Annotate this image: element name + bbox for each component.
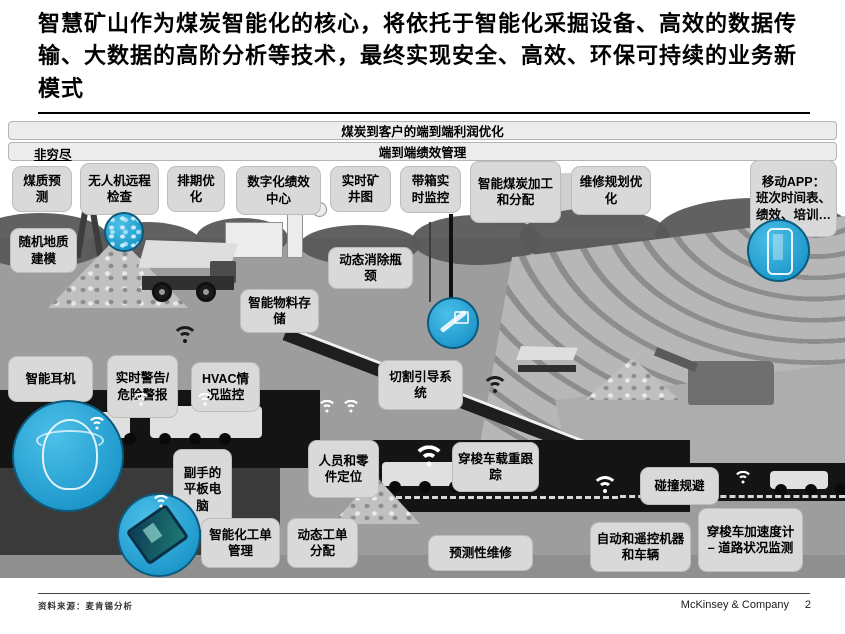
excavator	[688, 361, 774, 405]
wifi-icon	[592, 476, 618, 498]
haul-truck	[138, 240, 238, 302]
truck-wheel	[196, 282, 216, 302]
footer-divider	[38, 593, 810, 594]
page-number: 2	[805, 599, 811, 611]
wifi-icon	[482, 376, 508, 398]
truck-chassis	[518, 365, 575, 372]
label-dynamic-bottleneck-removal: 动态消除瓶颈	[328, 247, 413, 289]
label-stochastic-geology-modeling: 随机地质建模	[10, 228, 77, 273]
wifi-icon	[413, 445, 446, 473]
not-exhaustive-note: 非穷尽	[30, 143, 76, 164]
cutting-machine-callout	[427, 297, 479, 349]
truck-wheel	[152, 282, 172, 302]
label-smart-headset: 智能耳机	[8, 356, 93, 402]
miner-helmet-callout	[12, 400, 124, 512]
label-drone-remote-inspection: 无人机远程检查	[80, 163, 159, 215]
drone-callout	[104, 212, 144, 252]
source-note: 资料来源：麦肯锡分析	[38, 600, 133, 612]
label-personnel-parts-location: 人员和零件定位	[308, 440, 379, 498]
wifi-icon	[87, 417, 107, 434]
label-dynamic-work-order-dispatch: 动态工单分配	[287, 518, 358, 568]
wifi-icon	[341, 400, 361, 417]
callout-connector-line	[429, 222, 431, 302]
pit-truck	[516, 346, 578, 378]
banner-profit-optimization: 煤炭到客户的端到端利润优化	[8, 121, 837, 140]
label-shuttle-accelerometer-road-monitoring: 穿梭车加速度计 – 道路状况监测	[698, 508, 803, 572]
label-container-realtime-monitoring: 带箱实时监控	[400, 166, 461, 213]
mine-diagram: 煤炭到客户的端到端利润优化 端到端绩效管理 非穷尽 煤质预测 无人机远程检查 排…	[0, 118, 845, 578]
mckinsey-brand: McKinsey & Company	[681, 599, 789, 611]
banner-performance-management: 端到端绩效管理	[8, 142, 837, 161]
label-scheduling-optimization: 排期优化	[167, 166, 225, 212]
title-divider	[38, 112, 810, 114]
label-digital-performance-center: 数字化绩效中心	[236, 166, 321, 215]
wifi-icon	[151, 495, 171, 512]
label-coal-quality-prediction: 煤质预测	[12, 166, 72, 212]
label-smart-material-storage: 智能物料存储	[240, 289, 319, 333]
label-predictive-maintenance: 预测性维修	[428, 535, 533, 571]
wifi-icon	[172, 326, 198, 348]
silo-building	[287, 210, 303, 258]
label-realtime-mine-map: 实时矿井图	[330, 166, 391, 212]
label-maintenance-planning-optimization: 维修规划优化	[571, 166, 651, 215]
label-shuttle-load-tracking: 穿梭车载重跟踪	[452, 442, 539, 492]
wifi-icon	[733, 471, 753, 488]
label-collision-avoidance: 碰撞规避	[640, 467, 719, 505]
underground-truck	[770, 471, 828, 489]
label-automated-remote-machines: 自动和遥控机器和车辆	[590, 522, 691, 572]
truck-bed	[516, 346, 578, 360]
label-cutting-guidance-system: 切割引导系统	[378, 360, 463, 410]
slide-title: 智慧矿山作为煤炭智能化的核心，将依托于智能化采掘设备、高效的数据传输、大数据的高…	[38, 8, 810, 105]
wifi-icon	[131, 393, 151, 410]
smartphone-callout	[747, 219, 810, 282]
wifi-icon	[195, 393, 215, 410]
label-smart-work-order-management: 智能化工单管理	[201, 518, 280, 568]
wifi-icon	[317, 400, 337, 417]
label-smart-coal-processing-distribution: 智能煤炭加工和分配	[470, 161, 561, 223]
